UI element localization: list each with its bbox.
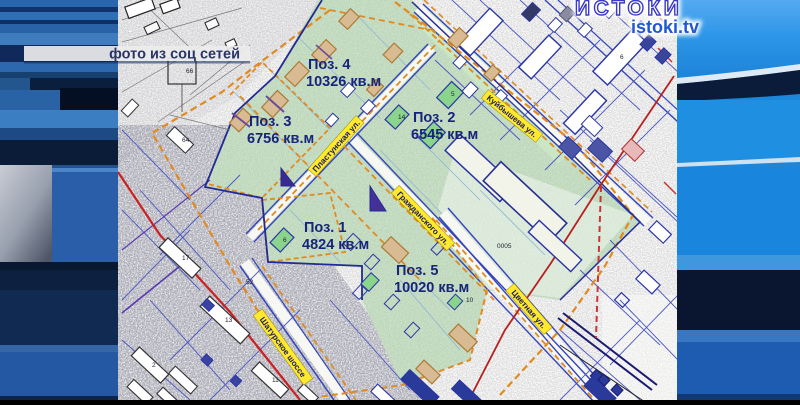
- svg-text:14: 14: [398, 114, 406, 121]
- svg-text:4824 кв.м: 4824 кв.м: [302, 237, 369, 253]
- svg-text:11: 11: [272, 377, 279, 384]
- svg-text:10: 10: [466, 297, 474, 304]
- svg-text:66: 66: [186, 68, 194, 75]
- svg-text:17: 17: [182, 255, 190, 262]
- svg-text:6756 кв.м: 6756 кв.м: [247, 131, 314, 147]
- svg-text:6: 6: [620, 54, 624, 61]
- svg-text:64: 64: [182, 137, 190, 144]
- svg-text:Поз. 3: Поз. 3: [249, 114, 291, 130]
- svg-text:Поз. 1: Поз. 1: [304, 220, 346, 236]
- svg-text:Поз. 4: Поз. 4: [308, 57, 350, 73]
- svg-text:52: 52: [246, 279, 254, 286]
- svg-text:6: 6: [283, 237, 287, 244]
- svg-text:6545 кв.м: 6545 кв.м: [411, 127, 478, 143]
- svg-text:13: 13: [225, 317, 233, 324]
- svg-text:Поз. 2: Поз. 2: [413, 110, 455, 126]
- svg-text:10020 кв.м: 10020 кв.м: [394, 280, 469, 296]
- svg-text:0005: 0005: [497, 243, 512, 250]
- svg-text:10326 кв.м: 10326 кв.м: [306, 74, 381, 90]
- svg-text:Поз. 5: Поз. 5: [396, 263, 438, 279]
- svg-text:istoki.tv: istoki.tv: [631, 17, 699, 37]
- svg-text:2: 2: [152, 362, 156, 369]
- svg-text:5: 5: [451, 91, 455, 98]
- svg-text:фото из соц сетей: фото из соц сетей: [109, 47, 240, 63]
